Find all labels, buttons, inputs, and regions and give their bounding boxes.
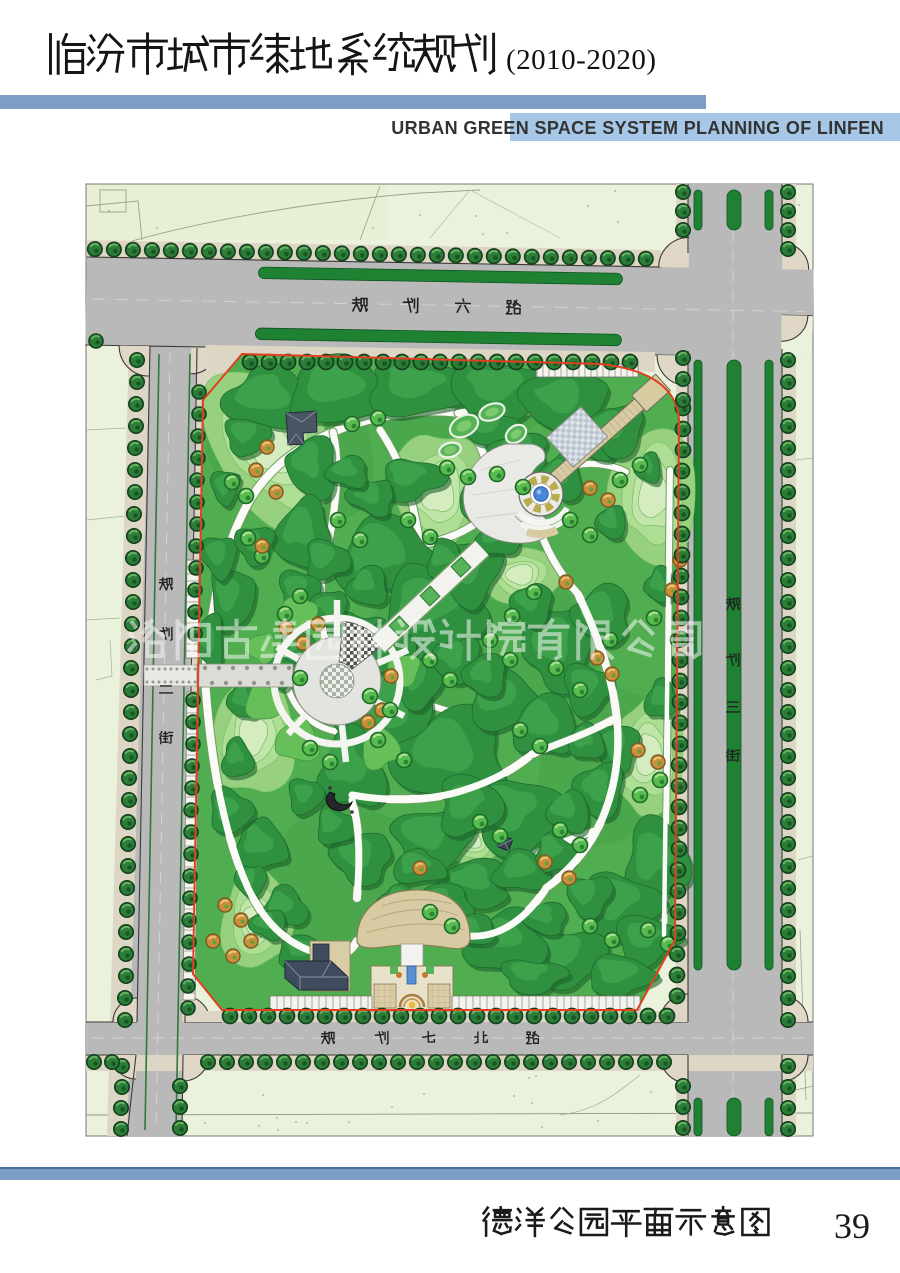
svg-text:(2010-2020): (2010-2020) bbox=[506, 44, 656, 76]
svg-text:URBAN GREEN SPACE SYSTEM PLANN: URBAN GREEN SPACE SYSTEM PLANNING OF LIN… bbox=[391, 118, 884, 138]
svg-text:39: 39 bbox=[834, 1206, 870, 1246]
